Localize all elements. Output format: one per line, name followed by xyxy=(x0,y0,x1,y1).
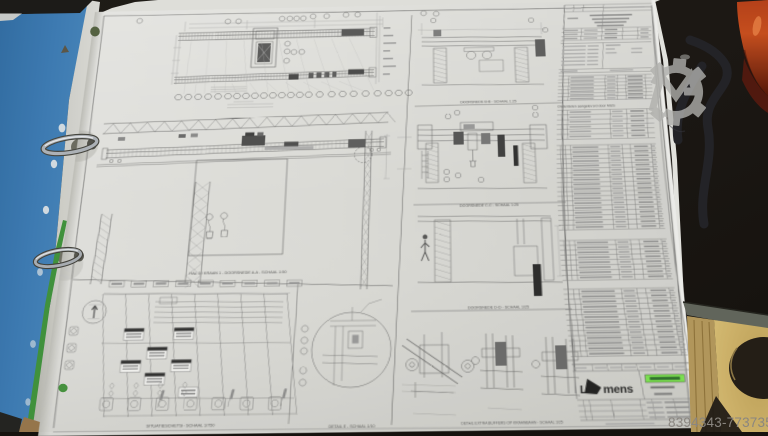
svg-text:8394343-7737350: 8394343-7737350 xyxy=(668,415,768,430)
